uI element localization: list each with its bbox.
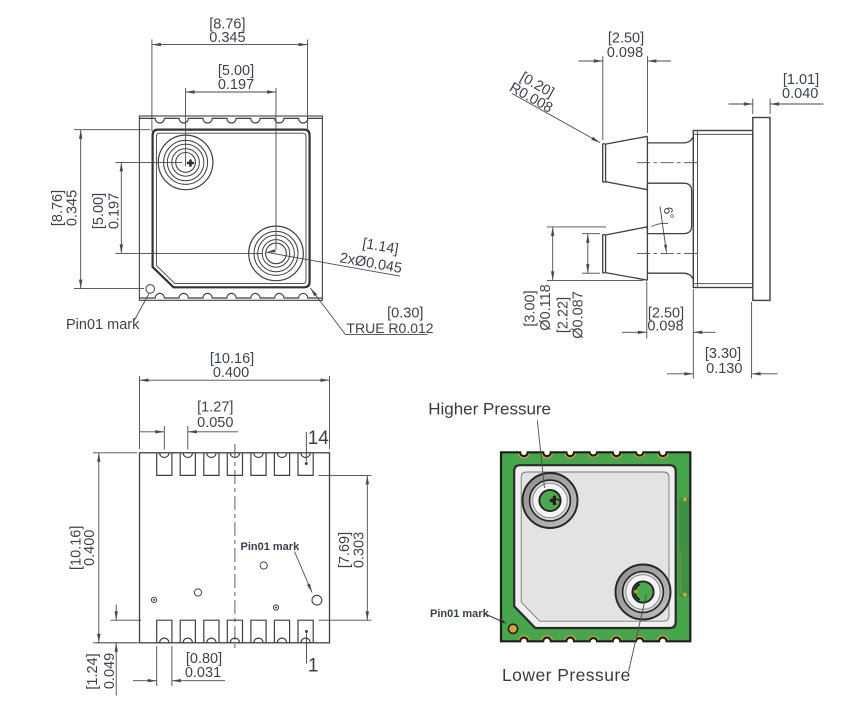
svg-text:Higher Pressure: Higher Pressure	[428, 400, 551, 419]
svg-text:Ø0.118: Ø0.118	[538, 284, 554, 331]
svg-text:0.303: 0.303	[352, 532, 368, 568]
svg-text:Pin01 mark: Pin01 mark	[430, 608, 490, 620]
svg-text:0.130: 0.130	[706, 361, 742, 377]
svg-text:0.400: 0.400	[82, 530, 98, 566]
svg-text:0.050: 0.050	[197, 415, 233, 431]
svg-text:0.098: 0.098	[607, 45, 643, 61]
svg-text:[1.24]: [1.24]	[85, 653, 101, 689]
svg-text:14: 14	[308, 428, 330, 449]
svg-text:0.345: 0.345	[209, 30, 245, 46]
svg-text:Lower Pressure: Lower Pressure	[502, 665, 631, 685]
svg-text:1: 1	[308, 656, 319, 677]
svg-text:[3.00]: [3.00]	[522, 290, 538, 326]
svg-text:0.345: 0.345	[65, 190, 81, 226]
svg-text:[8.76]: [8.76]	[50, 190, 66, 226]
svg-text:[5.00]: [5.00]	[91, 193, 107, 229]
svg-text:Pin01 mark: Pin01 mark	[66, 317, 140, 333]
svg-text:0.197: 0.197	[106, 193, 122, 229]
svg-text:[1.27]: [1.27]	[197, 399, 233, 415]
svg-text:0.400: 0.400	[213, 365, 249, 381]
svg-text:[3.30]: [3.30]	[705, 346, 741, 362]
svg-text:[2.50]: [2.50]	[608, 30, 644, 46]
svg-text:6°: 6°	[661, 206, 677, 220]
svg-text:[2.22]: [2.22]	[556, 297, 572, 333]
svg-text:0.098: 0.098	[647, 319, 683, 335]
svg-text:Pin01 mark: Pin01 mark	[241, 541, 301, 553]
svg-text:0.197: 0.197	[218, 77, 254, 93]
svg-text:Ø0.087: Ø0.087	[571, 291, 587, 339]
svg-text:0.049: 0.049	[102, 653, 118, 689]
svg-text:0.040: 0.040	[782, 86, 818, 102]
svg-text:0.031: 0.031	[185, 665, 221, 681]
svg-text:TRUE R0.012: TRUE R0.012	[346, 320, 433, 336]
